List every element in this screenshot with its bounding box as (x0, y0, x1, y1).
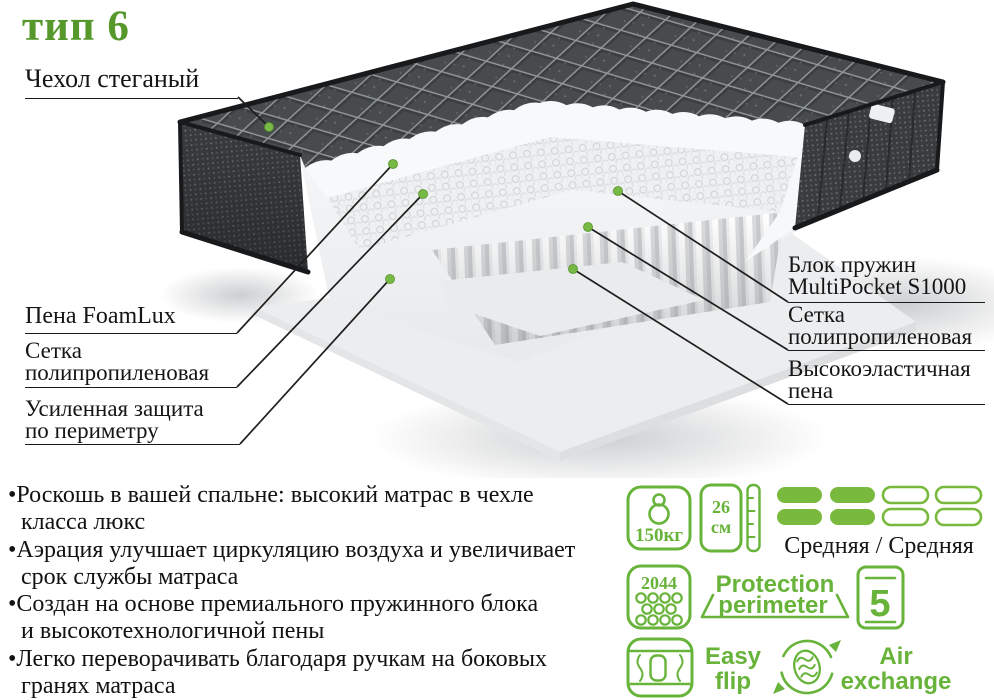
air-exchange-label-line2: exchange (841, 668, 952, 695)
kettlebell-icon (650, 495, 669, 524)
firmness-label: Средняя / Средняя (784, 533, 974, 559)
marker-foam (389, 160, 398, 169)
label-mesh-left-line2: полипропиленовая (25, 362, 237, 384)
height-unit: см (711, 517, 731, 537)
marker-perimeter (386, 275, 395, 284)
max-weight-value: 150кг (635, 525, 683, 546)
label-perimeter-line1: Усиленная защита (25, 398, 240, 420)
label-elastic-foam: Высокоэластичная пена (788, 358, 985, 405)
label-foam-text: Пена FoamLux (25, 304, 237, 328)
easy-flip-icon (628, 639, 692, 696)
marker-springs (614, 187, 623, 196)
firmness-pill-filled (830, 487, 875, 503)
badge-panel: 150кг 26 см Средняя / Средняя 2044 Prote… (620, 478, 994, 700)
firmness-scale (777, 487, 981, 525)
springs-dots-icon (636, 593, 681, 624)
air-exchange-label-line1: Air (879, 643, 912, 670)
label-mesh-left-line1: Сетка (25, 340, 237, 362)
height-value: 26 (712, 497, 730, 517)
mattress-tag-round (849, 150, 861, 162)
label-springs-line2: MultiPocket S1000 (788, 276, 985, 298)
marker-elastic-foam (569, 265, 578, 274)
feature-list: •Роскошь в вашей спальне: высокий матрас… (8, 482, 620, 700)
label-perimeter: Усиленная защита по периметру (25, 398, 240, 445)
easy-flip-label-line2: flip (715, 668, 751, 695)
firmness-pill-empty (936, 509, 981, 525)
label-foam: Пена FoamLux (25, 304, 237, 334)
label-springs: Блок пружин MultiPocket S1000 (788, 254, 985, 303)
springs-count-value: 2044 (641, 573, 677, 593)
label-cover-text: Чехол стеганый (25, 66, 238, 92)
feature-item: •Легко переворачивать благодаря ручкам н… (8, 646, 620, 700)
firmness-pill-empty (883, 509, 928, 525)
protection-text-line2: perimeter (718, 592, 827, 619)
label-cover: Чехол стеганый (25, 66, 238, 99)
feature-item: •Создан на основе премиального пружинног… (8, 591, 620, 646)
firmness-pill-filled (830, 509, 875, 525)
feature-item: •Аэрация улучшает циркуляцию воздуха и у… (8, 537, 620, 592)
feature-item: •Роскошь в вашей спальне: высокий матрас… (8, 482, 620, 537)
firmness-pill-empty (883, 487, 928, 503)
label-perimeter-line2: по периметру (25, 420, 240, 442)
label-elastic-foam-line2: пена (788, 380, 985, 402)
ruler-icon (748, 485, 760, 551)
label-springs-line1: Блок пружин (788, 254, 985, 276)
easy-flip-label-line1: Easy (705, 643, 762, 670)
marker-cover (265, 123, 274, 132)
firmness-pill-empty (936, 487, 981, 503)
firmness-pill-filled (777, 487, 822, 503)
label-mesh-right-line1: Сетка (788, 304, 985, 326)
label-mesh-right: Сетка полипропиленовая (788, 304, 985, 351)
marker-mesh-right (584, 223, 593, 232)
label-elastic-foam-line1: Высокоэластичная (788, 358, 985, 380)
label-mesh-left: Сетка полипропиленовая (25, 340, 237, 388)
warranty-years-value: 5 (869, 583, 890, 625)
label-mesh-right-line2: полипропиленовая (788, 326, 985, 348)
marker-mesh-left (419, 190, 428, 199)
mattress-infographic: тип 6 Чехол стеганый Пена FoamLux Сетка … (0, 0, 994, 700)
firmness-pill-filled (777, 509, 822, 525)
